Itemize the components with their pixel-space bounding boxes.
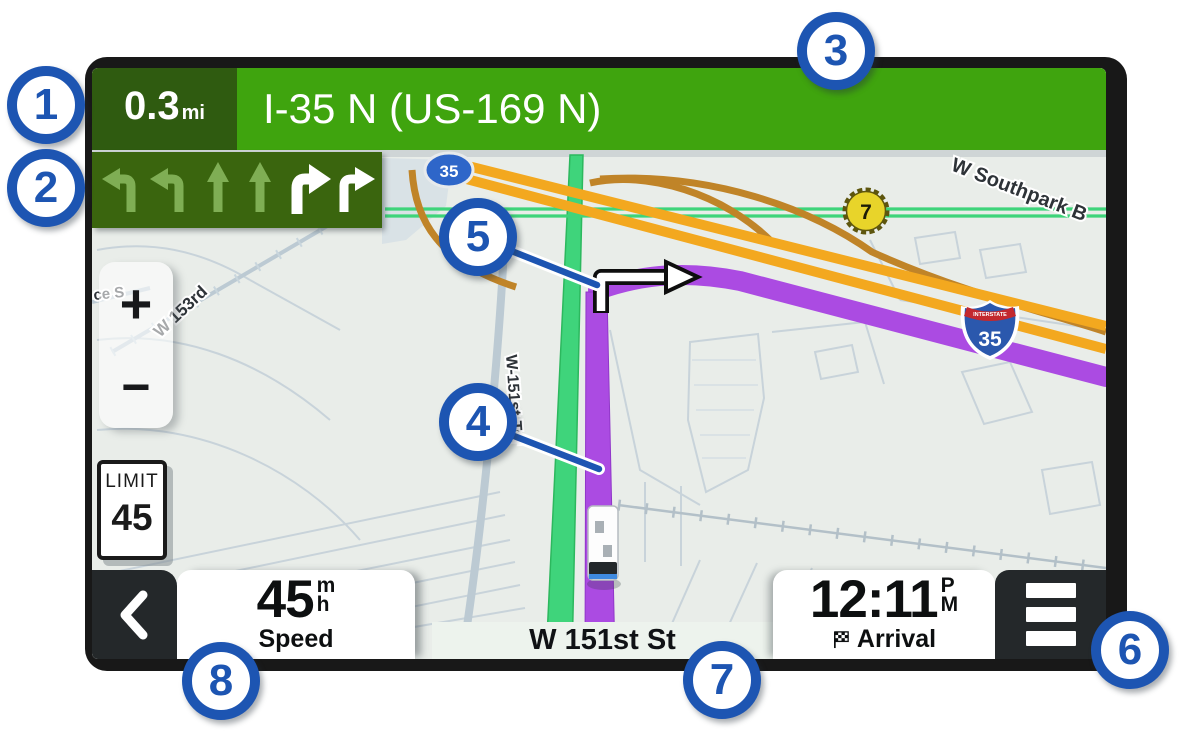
vehicle-icon: [587, 506, 621, 590]
speed-label: Speed: [258, 626, 333, 654]
callout-8-speed: 8: [182, 642, 260, 720]
zoom-out-button[interactable]: −: [99, 345, 173, 428]
speed-value: 45: [257, 573, 314, 626]
lane-guidance-panel: [92, 152, 382, 228]
back-button[interactable]: [92, 570, 177, 659]
arrival-label: Arrival: [857, 626, 936, 654]
arrival-widget[interactable]: 12:11 P M Arrival: [773, 570, 995, 659]
arrival-time: 12:11: [810, 573, 938, 626]
svg-text:INTERSTATE: INTERSTATE: [973, 312, 1007, 318]
callout-3-instruction: 3: [797, 12, 875, 90]
distance-to-turn: 0.3 mi: [92, 68, 237, 150]
callout-5-turn-arrow: 5: [439, 198, 517, 276]
distance-unit: mi: [182, 102, 205, 125]
hamburger-icon: [1026, 583, 1076, 598]
lane-arrow-right-active-1: [297, 164, 331, 214]
callout-6-menu: 6: [1091, 611, 1169, 689]
back-chevron-icon: [115, 587, 155, 643]
svg-text:7: 7: [860, 201, 872, 224]
speed-limit-value: 45: [111, 497, 152, 539]
lane-arrow-left-2: [150, 168, 179, 212]
lane-arrow-left-1: [102, 168, 131, 212]
menu-button[interactable]: [995, 570, 1106, 659]
callout-7-street: 7: [683, 641, 761, 719]
speed-limit-title: LIMIT: [105, 471, 159, 493]
callout-4-route: 4: [439, 383, 517, 461]
state-route-shield: 35: [425, 153, 473, 187]
lane-arrow-right-active-2: [344, 167, 375, 212]
current-street-name: W 151st St: [529, 624, 676, 657]
screenshot-stage: 35 7 INTERSTATE 35: [0, 0, 1200, 746]
svg-text:35: 35: [978, 328, 1002, 351]
checkered-flag-icon: [832, 630, 851, 649]
zoom-in-button[interactable]: +: [99, 262, 173, 345]
arrival-meridiem-bottom: M: [941, 595, 959, 614]
callout-2-lane-guidance: 2: [7, 149, 85, 227]
gps-screen: 35 7 INTERSTATE 35: [92, 68, 1106, 659]
speed-limit-sign: LIMIT 45: [97, 460, 167, 560]
distance-value: 0.3: [124, 86, 180, 126]
lane-arrow-straight-1: [207, 162, 229, 212]
svg-text:35: 35: [440, 162, 459, 181]
navigation-bar[interactable]: 0.3 mi I-35 N (US-169 N): [92, 68, 1106, 150]
callout-1-distance: 1: [7, 66, 85, 144]
lane-arrow-straight-2: [249, 162, 271, 212]
turn-instruction: I-35 N (US-169 N): [237, 68, 1106, 150]
speed-unit-denominator: h: [317, 595, 336, 614]
zoom-control-panel: + −: [99, 262, 173, 428]
